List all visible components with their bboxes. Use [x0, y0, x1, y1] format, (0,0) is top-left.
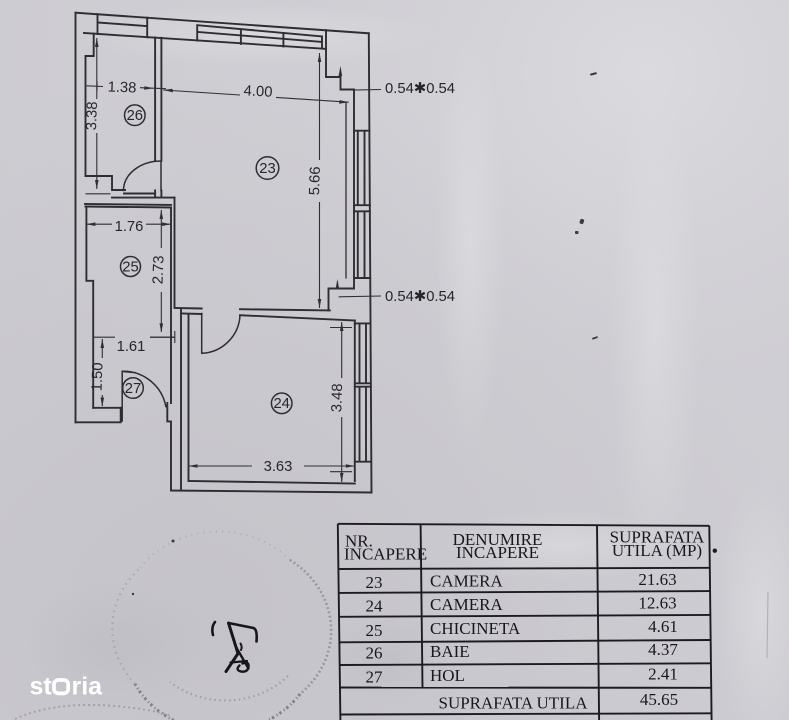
- svg-text:INCAPERE: INCAPERE: [344, 545, 427, 564]
- svg-text:4.00: 4.00: [243, 83, 273, 100]
- svg-text:27: 27: [125, 381, 141, 397]
- svg-text:0.54✱0.54: 0.54✱0.54: [385, 81, 455, 97]
- svg-text:3.63: 3.63: [264, 459, 293, 475]
- svg-text:ria: ria: [72, 673, 104, 701]
- svg-text:UTILA (MP): UTILA (MP): [612, 541, 702, 560]
- svg-text:st: st: [30, 673, 53, 701]
- svg-text:21.63: 21.63: [638, 570, 676, 589]
- svg-text:25: 25: [122, 259, 138, 275]
- svg-text:23: 23: [366, 573, 383, 592]
- svg-text:2.73: 2.73: [151, 255, 168, 284]
- svg-text:0.54✱0.54: 0.54✱0.54: [385, 289, 455, 305]
- svg-text:CAMERA: CAMERA: [430, 572, 503, 591]
- svg-text:12.63: 12.63: [638, 594, 676, 613]
- svg-text:5.66: 5.66: [307, 166, 324, 195]
- svg-text:4.61: 4.61: [648, 617, 678, 636]
- svg-text:1.61: 1.61: [117, 339, 146, 355]
- svg-text:45.65: 45.65: [640, 690, 678, 709]
- svg-text:SUPRAFATA UTILA: SUPRAFATA UTILA: [439, 694, 589, 713]
- svg-text:26: 26: [127, 108, 143, 124]
- svg-text:CAMERA: CAMERA: [430, 595, 503, 614]
- svg-text:HOL: HOL: [430, 666, 465, 685]
- svg-text:1.50: 1.50: [90, 362, 107, 391]
- svg-text:INCAPERE: INCAPERE: [456, 543, 539, 562]
- svg-text:1.38: 1.38: [107, 80, 136, 97]
- svg-text:25: 25: [366, 621, 383, 640]
- svg-text:1.76: 1.76: [115, 219, 144, 235]
- svg-text:CHICINETA: CHICINETA: [430, 619, 521, 638]
- svg-text:3.48: 3.48: [329, 383, 346, 412]
- svg-text:2.41: 2.41: [648, 665, 678, 684]
- svg-text:BAIE: BAIE: [430, 642, 470, 661]
- svg-text:26: 26: [366, 643, 383, 662]
- svg-text:23: 23: [259, 161, 275, 177]
- svg-text:3.38: 3.38: [84, 101, 101, 130]
- svg-text:24: 24: [273, 396, 289, 412]
- svg-text:27: 27: [366, 667, 384, 686]
- svg-text:4.37: 4.37: [648, 640, 678, 659]
- svg-text:24: 24: [366, 597, 384, 616]
